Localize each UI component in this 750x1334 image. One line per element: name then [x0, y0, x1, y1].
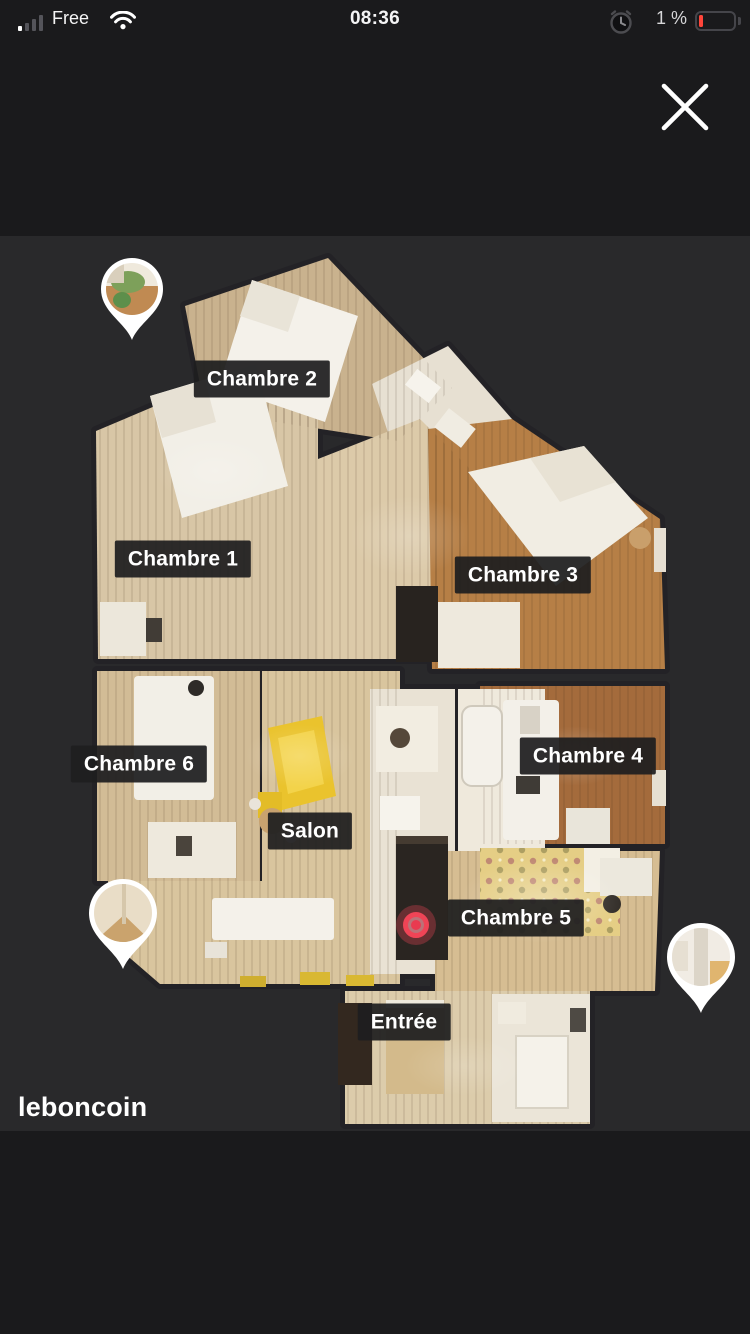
- room-label-salon: Salon: [268, 813, 352, 850]
- photo-pin-room-right[interactable]: [664, 921, 738, 1022]
- photo-pin-room-left[interactable]: [86, 877, 160, 978]
- close-button[interactable]: [656, 78, 714, 136]
- room-label-chambre-1: Chambre 1: [115, 541, 251, 578]
- room-label-chambre-2: Chambre 2: [194, 361, 330, 398]
- status-bar: Free 08:36 1 %: [0, 0, 750, 44]
- wifi-icon: [110, 11, 136, 30]
- leboncoin-logo: leboncoin: [18, 1092, 147, 1123]
- room-label-entree: Entrée: [358, 1004, 451, 1041]
- screen: { "status_bar": { "carrier": "Free", "ti…: [0, 0, 750, 1334]
- room-label-chambre-6: Chambre 6: [71, 746, 207, 783]
- floorplan-image: [0, 236, 750, 1131]
- battery-icon: [695, 11, 736, 31]
- battery-percent-label: 1 %: [656, 8, 687, 29]
- clock-label: 08:36: [350, 8, 400, 30]
- room-label-chambre-4: Chambre 4: [520, 738, 656, 775]
- cellular-signal-icon: [18, 15, 48, 31]
- map-pin-icon: [86, 877, 160, 973]
- map-pin-icon: [98, 256, 166, 344]
- close-icon: [656, 78, 714, 136]
- battery-fill-low: [699, 15, 703, 27]
- floorplan-viewer[interactable]: [0, 236, 750, 1131]
- battery-nub: [738, 17, 741, 25]
- room-label-chambre-3: Chambre 3: [455, 557, 591, 594]
- carrier-label: Free: [52, 8, 89, 29]
- photo-pin-balcony[interactable]: [98, 256, 166, 349]
- position-marker[interactable]: [396, 905, 436, 945]
- room-label-chambre-5: Chambre 5: [448, 900, 584, 937]
- map-pin-icon: [664, 921, 738, 1017]
- alarm-clock-icon: [608, 9, 634, 35]
- position-marker-dot: [411, 920, 421, 930]
